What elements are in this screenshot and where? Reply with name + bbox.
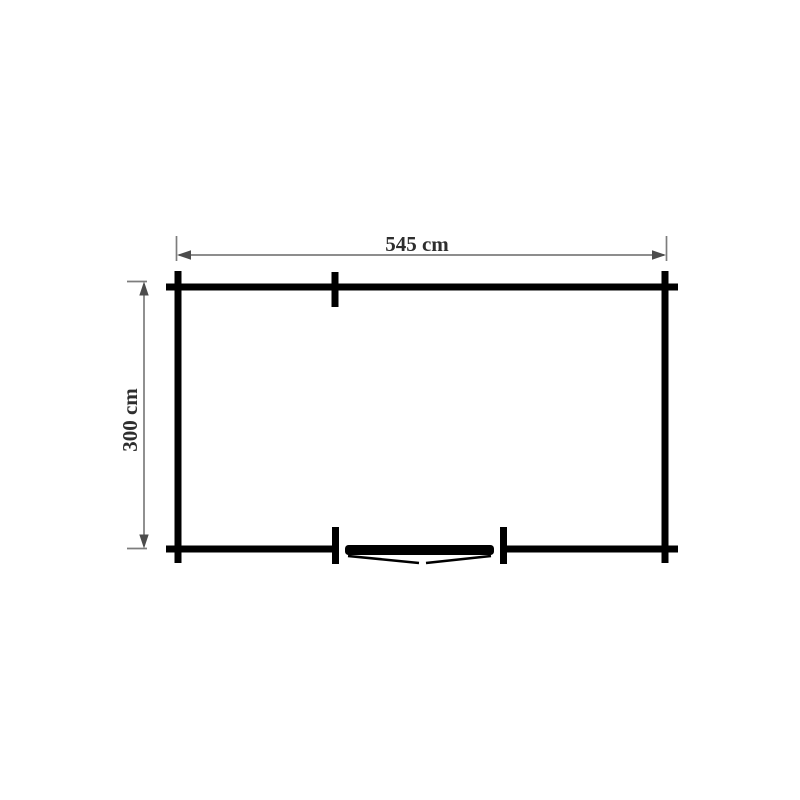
arrow-left-icon xyxy=(177,250,191,260)
height-dimension: 300 cm xyxy=(118,282,149,549)
arrow-up-icon xyxy=(139,282,148,296)
walls xyxy=(166,271,678,563)
door-leaf-right xyxy=(426,556,491,563)
arrow-right-icon xyxy=(652,250,666,260)
floor-plan-canvas: 545 cm 300 cm xyxy=(0,0,800,800)
door-leaf-left xyxy=(348,556,419,563)
door-panel-bar xyxy=(345,545,494,555)
floor-plan-drawing: 545 cm 300 cm xyxy=(0,0,800,800)
arrow-down-icon xyxy=(139,535,148,549)
width-dimension-label: 545 cm xyxy=(385,232,449,256)
double-door xyxy=(336,527,504,564)
height-dimension-label: 300 cm xyxy=(118,388,142,452)
width-dimension: 545 cm xyxy=(177,232,667,261)
